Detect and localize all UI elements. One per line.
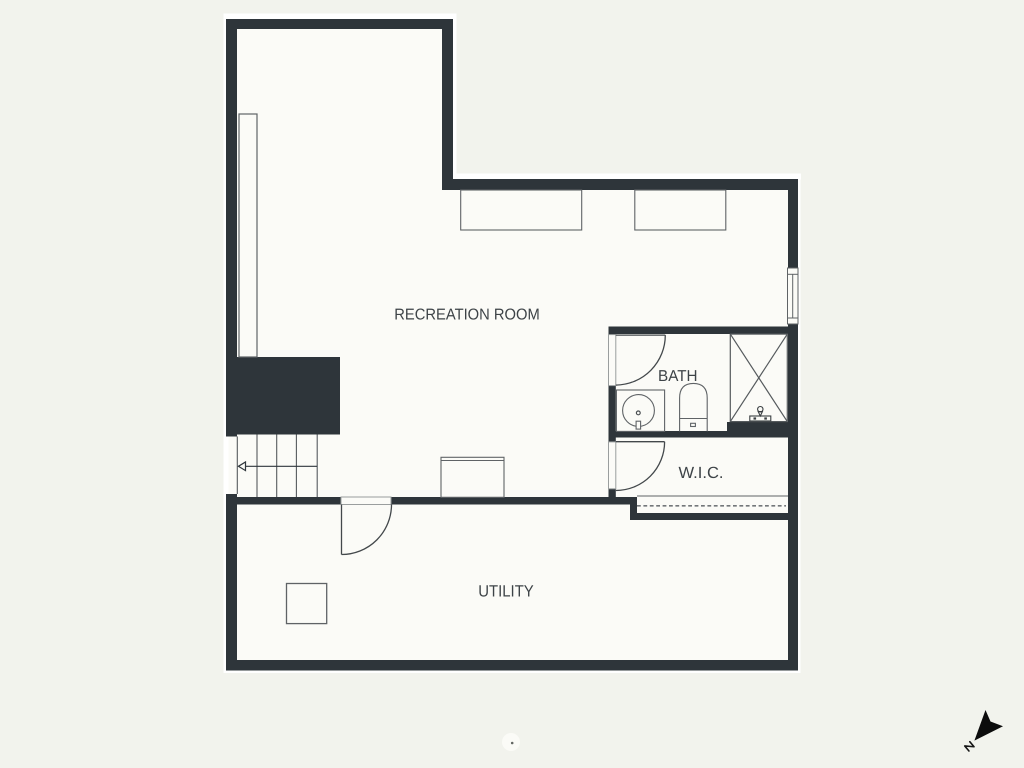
- svg-text:RECREATION ROOM: RECREATION ROOM: [394, 307, 540, 324]
- svg-text:W.I.C.: W.I.C.: [679, 464, 724, 482]
- svg-text:BATH: BATH: [658, 368, 698, 385]
- svg-text:UTILITY: UTILITY: [478, 582, 534, 600]
